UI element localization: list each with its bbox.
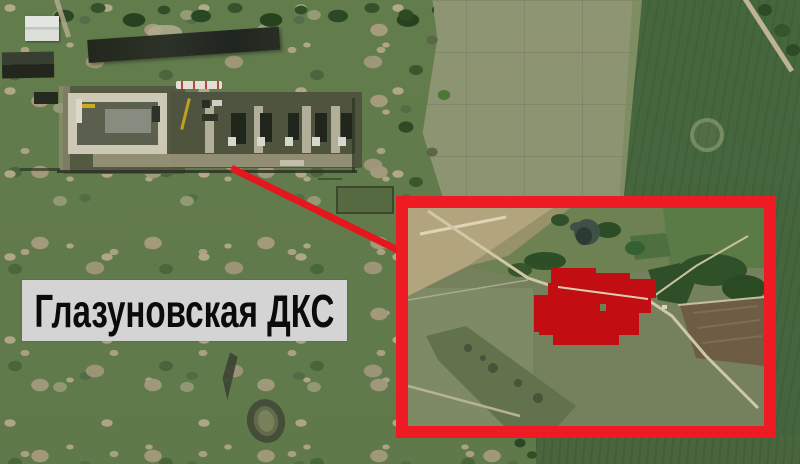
fenced-plot: [336, 186, 394, 214]
annotated-satellite-image: Глазуновская ДКС: [0, 0, 800, 464]
tree-band-center: [392, 0, 468, 212]
perimeter-berm: [57, 170, 357, 173]
compressor-unit: [288, 113, 299, 140]
white-roof-building: [25, 16, 59, 41]
tree-clump: [774, 24, 790, 37]
inner-gray-pad: [105, 109, 151, 133]
equipment-box: [212, 100, 222, 106]
compressor-unit: [260, 113, 272, 142]
compressor-station-compound: [55, 80, 367, 182]
compressor-unit: [315, 113, 327, 142]
bottom-tree-strip: [512, 435, 542, 464]
inset-map: [396, 196, 776, 438]
equipment-box: [202, 114, 218, 121]
white-equipment-strip: [76, 99, 82, 123]
equipment-box: [202, 100, 210, 108]
highlight-mask: [534, 268, 656, 345]
compressor-unit: [231, 113, 246, 144]
facility-label-text: Глазуновская ДКС: [34, 284, 334, 338]
pad-road: [302, 106, 311, 153]
concrete-apron: [93, 154, 355, 167]
dark-building: [2, 52, 54, 79]
perimeter-berm: [352, 98, 355, 172]
tank-row: [176, 81, 222, 89]
facility-label: Глазуновская ДКС: [22, 280, 347, 341]
compressor-unit: [341, 113, 352, 139]
perimeter-berm: [20, 168, 60, 171]
tree-clump: [758, 4, 772, 16]
inset-satellite-map: [408, 208, 764, 426]
tree-clump: [786, 44, 800, 56]
bottom-green-field: [536, 435, 800, 464]
dark-equipment-unit: [152, 106, 160, 122]
fence-line: [318, 178, 342, 180]
white-pad: [280, 160, 304, 166]
yellow-marker: [82, 104, 95, 108]
faint-circle-feature: [690, 118, 724, 152]
